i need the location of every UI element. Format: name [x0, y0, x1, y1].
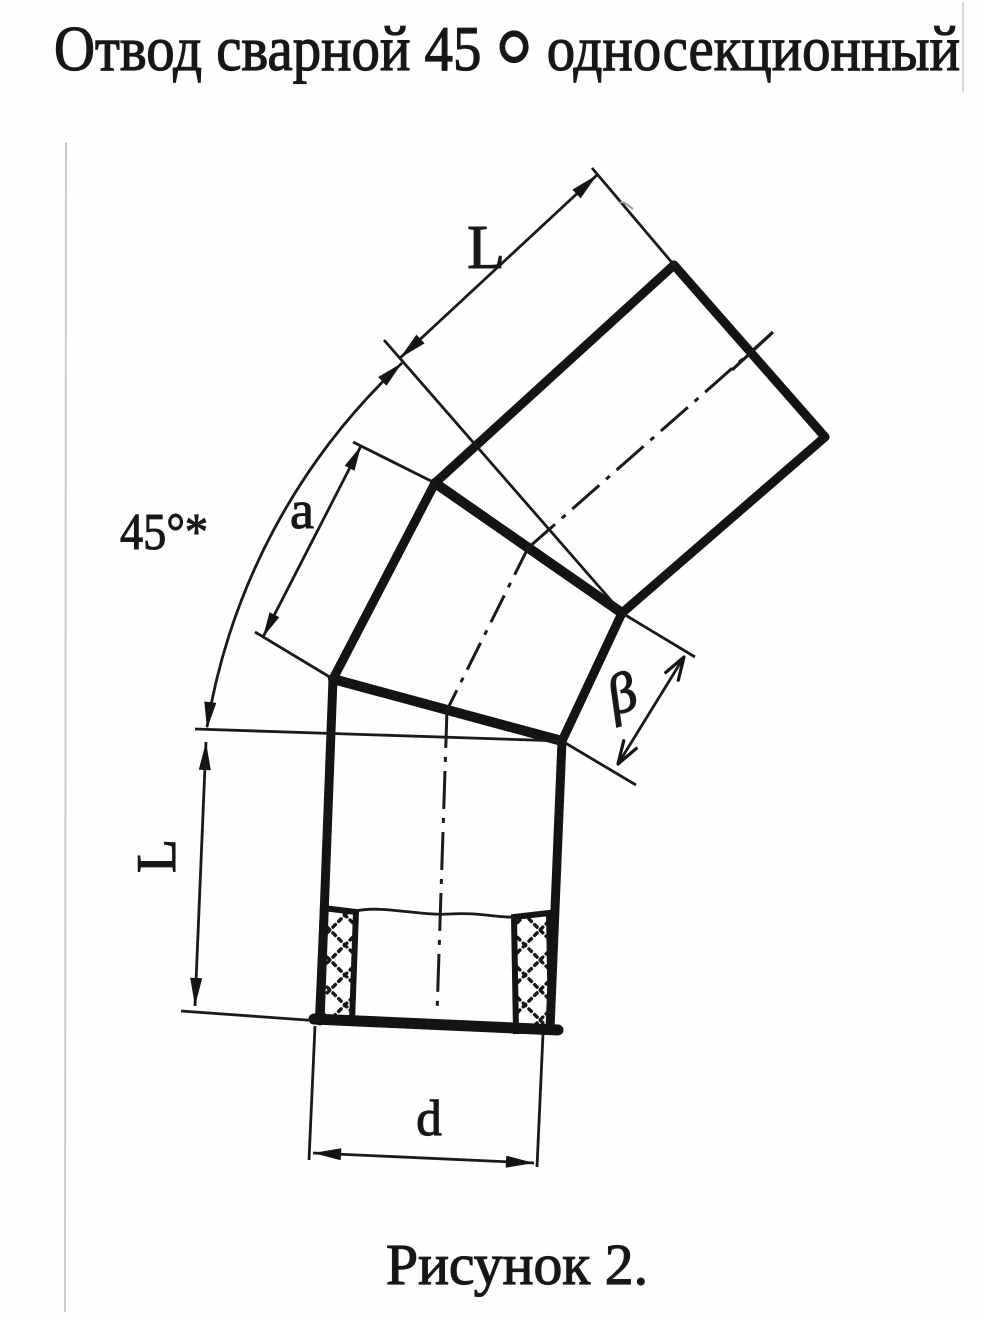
svg-text:d: d [416, 1091, 442, 1147]
svg-text:Рисунок 2.: Рисунок 2. [386, 1232, 648, 1297]
svg-text:L: L [467, 214, 505, 282]
svg-text:L: L [126, 839, 188, 873]
svg-text:45°*: 45°* [120, 504, 208, 561]
svg-text:a: a [290, 480, 314, 540]
